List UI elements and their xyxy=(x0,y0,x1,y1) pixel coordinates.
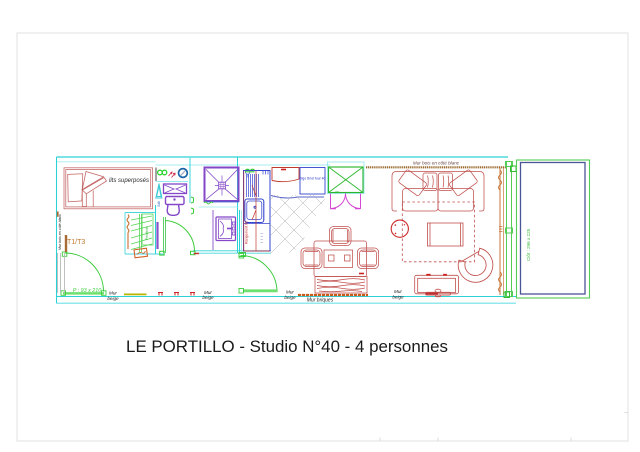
svg-text:Rangement 60: Rangement 60 xyxy=(245,221,249,244)
svg-text:beige: beige xyxy=(202,295,214,300)
svg-text:Mur bois en côté blanc: Mur bois en côté blanc xyxy=(413,161,460,166)
svg-text:beige: beige xyxy=(284,295,296,300)
svg-text:Mur: Mur xyxy=(394,289,402,294)
svg-text:P : 93 x 210: P : 93 x 210 xyxy=(73,288,102,294)
svg-text:Clôt : 296 x 225: Clôt : 296 x 225 xyxy=(526,228,531,261)
svg-text:T1/T3: T1/T3 xyxy=(67,239,85,246)
svg-text:Mur bois en côté blanc: Mur bois en côté blanc xyxy=(58,214,62,250)
svg-text:frigo tbl et four 40: frigo tbl et four 40 xyxy=(300,177,326,181)
svg-text:Mur: Mur xyxy=(109,291,117,296)
svg-text:beige: beige xyxy=(107,296,119,301)
svg-text:LE PORTILLO - Studio N°40 - 4: LE PORTILLO - Studio N°40 - 4 personnes xyxy=(126,337,448,356)
svg-text:lits superposés: lits superposés xyxy=(109,178,149,184)
svg-text:Sdb: Sdb xyxy=(157,201,161,207)
svg-text:Penderie: Penderie xyxy=(145,226,149,240)
svg-text:Mur: Mur xyxy=(286,290,294,295)
svg-text:Mur briques: Mur briques xyxy=(307,298,334,304)
svg-text:beige: beige xyxy=(392,294,404,299)
